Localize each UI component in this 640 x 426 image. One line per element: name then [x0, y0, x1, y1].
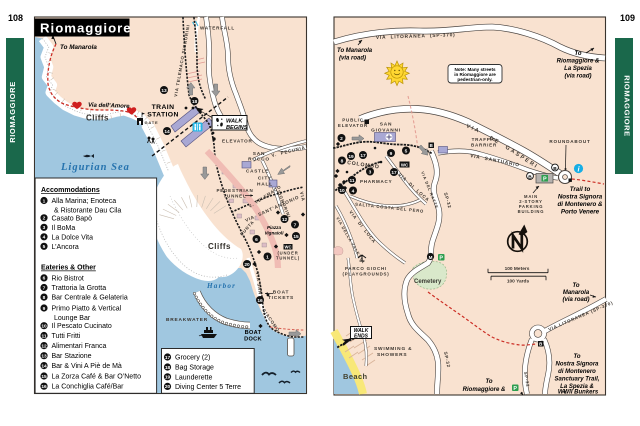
svg-text:Sanctuary Trail,: Sanctuary Trail,: [555, 377, 600, 383]
svg-text:5: 5: [405, 148, 408, 154]
svg-text:8: 8: [341, 158, 344, 164]
svg-text:(via road): (via road): [564, 74, 591, 80]
svg-text:Harbor: Harbor: [206, 282, 236, 290]
svg-text:12: 12: [282, 217, 288, 223]
svg-text:WALK: WALK: [226, 119, 243, 125]
svg-text:To: To: [485, 379, 492, 385]
svg-text:WATERFALL: WATERFALL: [200, 26, 235, 31]
svg-text:Riomaggiore &: Riomaggiore &: [557, 59, 600, 65]
svg-text:11: 11: [349, 178, 354, 184]
svg-text:7: 7: [43, 285, 46, 291]
svg-text:Riomaggiore: Riomaggiore: [40, 21, 132, 36]
svg-text:SAN: SAN: [253, 151, 266, 157]
svg-text:4: 4: [43, 235, 46, 241]
svg-text:WC: WC: [285, 245, 292, 250]
svg-text:1: 1: [43, 198, 46, 204]
svg-text:BOAT: BOAT: [245, 330, 262, 336]
svg-text:ROUNDABOUT: ROUNDABOUT: [549, 139, 590, 144]
svg-text:Rio Bistrot: Rio Bistrot: [52, 275, 84, 282]
svg-text:P: P: [543, 177, 547, 183]
svg-text:TUNNEL: TUNNEL: [223, 194, 246, 199]
svg-text:PHARMACY: PHARMACY: [360, 179, 392, 184]
svg-text:BARRIER: BARRIER: [471, 143, 497, 148]
svg-text:CITY: CITY: [258, 176, 272, 182]
svg-text:B: B: [528, 174, 532, 180]
svg-text:PEDESTRIAN: PEDESTRIAN: [216, 188, 253, 193]
svg-text:HALL: HALL: [257, 182, 273, 188]
svg-text:di Montenero: di Montenero: [558, 369, 596, 375]
svg-text:Piazza: Piazza: [267, 225, 281, 230]
svg-text:17: 17: [391, 170, 397, 176]
svg-text:Cemetery: Cemetery: [414, 279, 442, 285]
svg-text:18: 18: [165, 365, 171, 371]
svg-text:Cliffs: Cliffs: [86, 114, 109, 123]
svg-text:Bar Centrale & Gelateria: Bar Centrale & Gelateria: [52, 295, 128, 302]
svg-text:9: 9: [390, 151, 393, 157]
svg-text:BREAKWATER: BREAKWATER: [166, 317, 208, 323]
svg-text:1: 1: [266, 254, 269, 260]
svg-text:ELEVATOR: ELEVATOR: [222, 139, 253, 144]
svg-text:(via road): (via road): [562, 297, 589, 303]
svg-text:SWIMMING &: SWIMMING &: [374, 346, 412, 352]
svg-text:13: 13: [41, 354, 47, 360]
svg-text:20: 20: [165, 384, 171, 390]
svg-text:Alimentari Franca: Alimentari Franca: [52, 343, 107, 350]
svg-text:B: B: [430, 143, 433, 148]
svg-text:STATION: STATION: [147, 112, 179, 119]
svg-text:100 Yards: 100 Yards: [507, 279, 530, 285]
svg-text:Porto Venere: Porto Venere: [561, 209, 600, 216]
svg-text:Il Pescato Cucinato: Il Pescato Cucinato: [52, 323, 112, 330]
svg-text:Bar Stazione: Bar Stazione: [52, 353, 92, 360]
svg-text:Cliffs: Cliffs: [208, 242, 231, 251]
svg-text:Accommodations: Accommodations: [41, 187, 100, 194]
svg-text:Nostra Signora: Nostra Signora: [555, 362, 599, 368]
svg-text:SHOWERS: SHOWERS: [377, 352, 407, 358]
svg-text:L’Ancora: L’Ancora: [52, 244, 79, 251]
svg-text:B: B: [553, 166, 557, 172]
svg-text:BOAT: BOAT: [273, 290, 289, 296]
svg-text:9: 9: [43, 306, 46, 312]
svg-text:Tutti Fritti: Tutti Fritti: [52, 333, 81, 340]
svg-text:12: 12: [41, 343, 47, 349]
svg-text:14: 14: [41, 363, 47, 369]
svg-text:6: 6: [43, 276, 46, 282]
svg-text:3: 3: [43, 225, 46, 231]
svg-text:15: 15: [293, 234, 299, 240]
svg-text:6: 6: [255, 237, 258, 243]
svg-text:Nostra Signora: Nostra Signora: [558, 194, 603, 201]
svg-text:To: To: [572, 283, 579, 289]
svg-text:Riomaggiore &: Riomaggiore &: [463, 387, 506, 393]
svg-text:16: 16: [257, 298, 263, 304]
svg-text:Il BoMa: Il BoMa: [52, 225, 76, 232]
svg-text:14: 14: [164, 129, 170, 135]
svg-text:13: 13: [161, 88, 167, 94]
svg-text:P: P: [513, 386, 517, 392]
svg-text:SAN: SAN: [380, 122, 393, 128]
svg-text:GATE: GATE: [145, 120, 159, 125]
svg-text:PARCO GIOCHI: PARCO GIOCHI: [345, 266, 387, 271]
svg-text:Grocery (2): Grocery (2): [175, 355, 210, 362]
svg-text:M: M: [429, 255, 433, 260]
svg-text:2: 2: [340, 136, 343, 142]
svg-text:PUBLIC: PUBLIC: [342, 118, 364, 123]
svg-text:ENDS: ENDS: [354, 334, 369, 340]
svg-text:ELEVATOR: ELEVATOR: [338, 123, 368, 128]
svg-text:TICKETS: TICKETS: [268, 295, 294, 301]
svg-text:ROCCO: ROCCO: [248, 157, 270, 163]
svg-text:16: 16: [41, 384, 47, 390]
svg-text:Primo Piatto & Vertical: Primo Piatto & Vertical: [52, 306, 122, 313]
svg-text:& Ristorante Dau Cila: & Ristorante Dau Cila: [54, 208, 121, 215]
svg-text:Trail to: Trail to: [570, 186, 591, 193]
svg-text:17: 17: [165, 355, 171, 361]
svg-text:Beach: Beach: [343, 372, 368, 381]
svg-text:La Spezia: La Spezia: [564, 66, 592, 72]
svg-text:Ligurian Sea: Ligurian Sea: [60, 162, 130, 173]
svg-text:TRAIN: TRAIN: [152, 104, 175, 111]
svg-text:BEGINS: BEGINS: [226, 125, 248, 131]
svg-text:3: 3: [369, 169, 372, 175]
svg-text:(via road): (via road): [339, 56, 366, 62]
svg-text:BUILDING: BUILDING: [518, 209, 545, 214]
svg-text:di Montenero &: di Montenero &: [557, 201, 603, 208]
svg-text:pedestrian-only.: pedestrian-only.: [457, 77, 492, 82]
svg-text:To: To: [574, 51, 581, 57]
svg-text:Launderette: Launderette: [175, 374, 212, 381]
svg-text:To: To: [573, 354, 580, 360]
svg-text:To Manarola: To Manarola: [337, 48, 373, 54]
svg-text:5: 5: [43, 244, 46, 250]
svg-text:18: 18: [192, 99, 198, 105]
svg-text:Diving Center 5 Terre: Diving Center 5 Terre: [175, 384, 241, 391]
svg-text:RIOMAGGIORE: RIOMAGGIORE: [8, 81, 17, 143]
svg-text:8: 8: [43, 295, 46, 301]
svg-text:2: 2: [43, 216, 46, 222]
svg-text:WC: WC: [401, 162, 409, 167]
svg-text:P: P: [439, 256, 443, 262]
svg-text:Casato Bapò: Casato Bapò: [52, 215, 93, 222]
svg-text:20: 20: [244, 262, 250, 268]
svg-text:B: B: [539, 342, 542, 347]
svg-text:17: 17: [360, 153, 366, 159]
svg-text:Bag Storage: Bag Storage: [175, 365, 214, 372]
svg-text:To Manarola: To Manarola: [60, 44, 97, 51]
svg-text:10: 10: [41, 324, 47, 330]
svg-text:La Zorza Café & Bar O’Netto: La Zorza Café & Bar O’Netto: [52, 374, 142, 381]
svg-text:Lounge Bar: Lounge Bar: [54, 315, 91, 322]
svg-text:Vignaioli: Vignaioli: [265, 231, 285, 236]
svg-text:Manarola: Manarola: [563, 290, 590, 296]
svg-text:TUNNEL): TUNNEL): [276, 256, 300, 261]
svg-text:DOCK: DOCK: [244, 337, 262, 343]
svg-text:19: 19: [165, 375, 171, 381]
svg-text:Bar & Vini A Piè de Mà: Bar & Vini A Piè de Mà: [52, 363, 122, 370]
svg-text:108: 108: [8, 13, 23, 23]
svg-text:100 Meters: 100 Meters: [505, 266, 530, 272]
svg-text:Trattoria la Grotta: Trattoria la Grotta: [52, 285, 107, 292]
svg-text:Eateries & Other: Eateries & Other: [41, 265, 96, 272]
svg-text:Alla Marina; Enoteca: Alla Marina; Enoteca: [52, 198, 117, 205]
svg-text:La Dolce Vita: La Dolce Vita: [52, 234, 94, 241]
svg-text:11: 11: [41, 333, 46, 339]
svg-text:TRAFFIC: TRAFFIC: [472, 137, 497, 142]
svg-text:7: 7: [294, 222, 297, 228]
svg-text:RIOMAGGIORE: RIOMAGGIORE: [623, 75, 632, 137]
svg-text:15: 15: [41, 374, 47, 380]
svg-text:La Conchiglia Café/Bar: La Conchiglia Café/Bar: [52, 384, 125, 391]
svg-text:(PLAYGROUNDS): (PLAYGROUNDS): [342, 272, 389, 277]
svg-text:19: 19: [348, 154, 354, 160]
svg-text:CASTLE: CASTLE: [246, 169, 269, 174]
svg-text:4: 4: [352, 188, 355, 194]
svg-text:109: 109: [620, 13, 635, 23]
